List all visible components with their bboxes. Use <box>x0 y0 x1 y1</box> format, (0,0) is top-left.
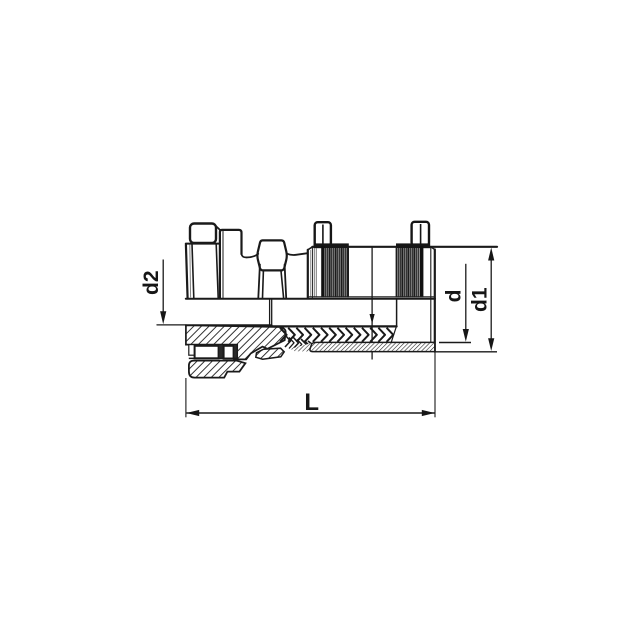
svg-text:L: L <box>304 389 319 416</box>
svg-text:d1: d1 <box>469 287 492 312</box>
svg-text:d2: d2 <box>140 270 163 295</box>
svg-text:d: d <box>442 290 465 303</box>
